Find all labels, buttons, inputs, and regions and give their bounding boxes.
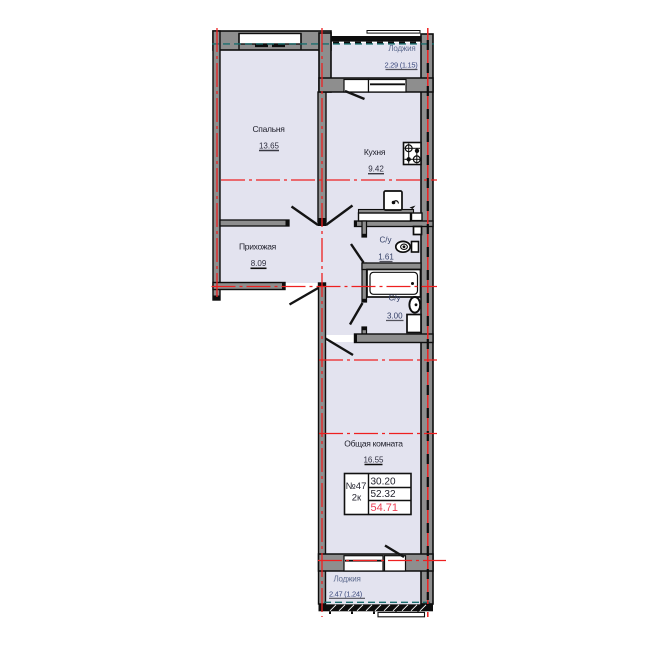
svg-text:2к: 2к	[352, 493, 362, 504]
svg-text:54.71: 54.71	[371, 502, 399, 514]
svg-text:2.29 (1.15): 2.29 (1.15)	[385, 61, 419, 70]
svg-text:С/у: С/у	[389, 294, 401, 303]
svg-text:13.65: 13.65	[259, 141, 280, 150]
svg-text:№47: №47	[346, 481, 367, 492]
svg-text:С/у: С/у	[380, 236, 392, 245]
svg-text:8.09: 8.09	[251, 259, 267, 268]
svg-text:9.42: 9.42	[368, 165, 384, 174]
svg-text:Кухня: Кухня	[364, 147, 386, 157]
svg-text:Лоджия: Лоджия	[334, 574, 361, 583]
svg-text:Лоджия: Лоджия	[388, 44, 415, 53]
svg-text:2.47 (1.24): 2.47 (1.24)	[329, 589, 363, 598]
svg-text:Спальня: Спальня	[252, 124, 285, 134]
svg-text:3.00: 3.00	[387, 311, 403, 320]
svg-text:16.55: 16.55	[363, 455, 384, 464]
svg-text:1.61: 1.61	[378, 253, 394, 262]
svg-text:52.32: 52.32	[371, 489, 396, 500]
svg-text:Общая комната: Общая комната	[344, 438, 403, 448]
svg-text:Прихожая: Прихожая	[239, 242, 277, 252]
svg-text:30.20: 30.20	[371, 477, 396, 488]
